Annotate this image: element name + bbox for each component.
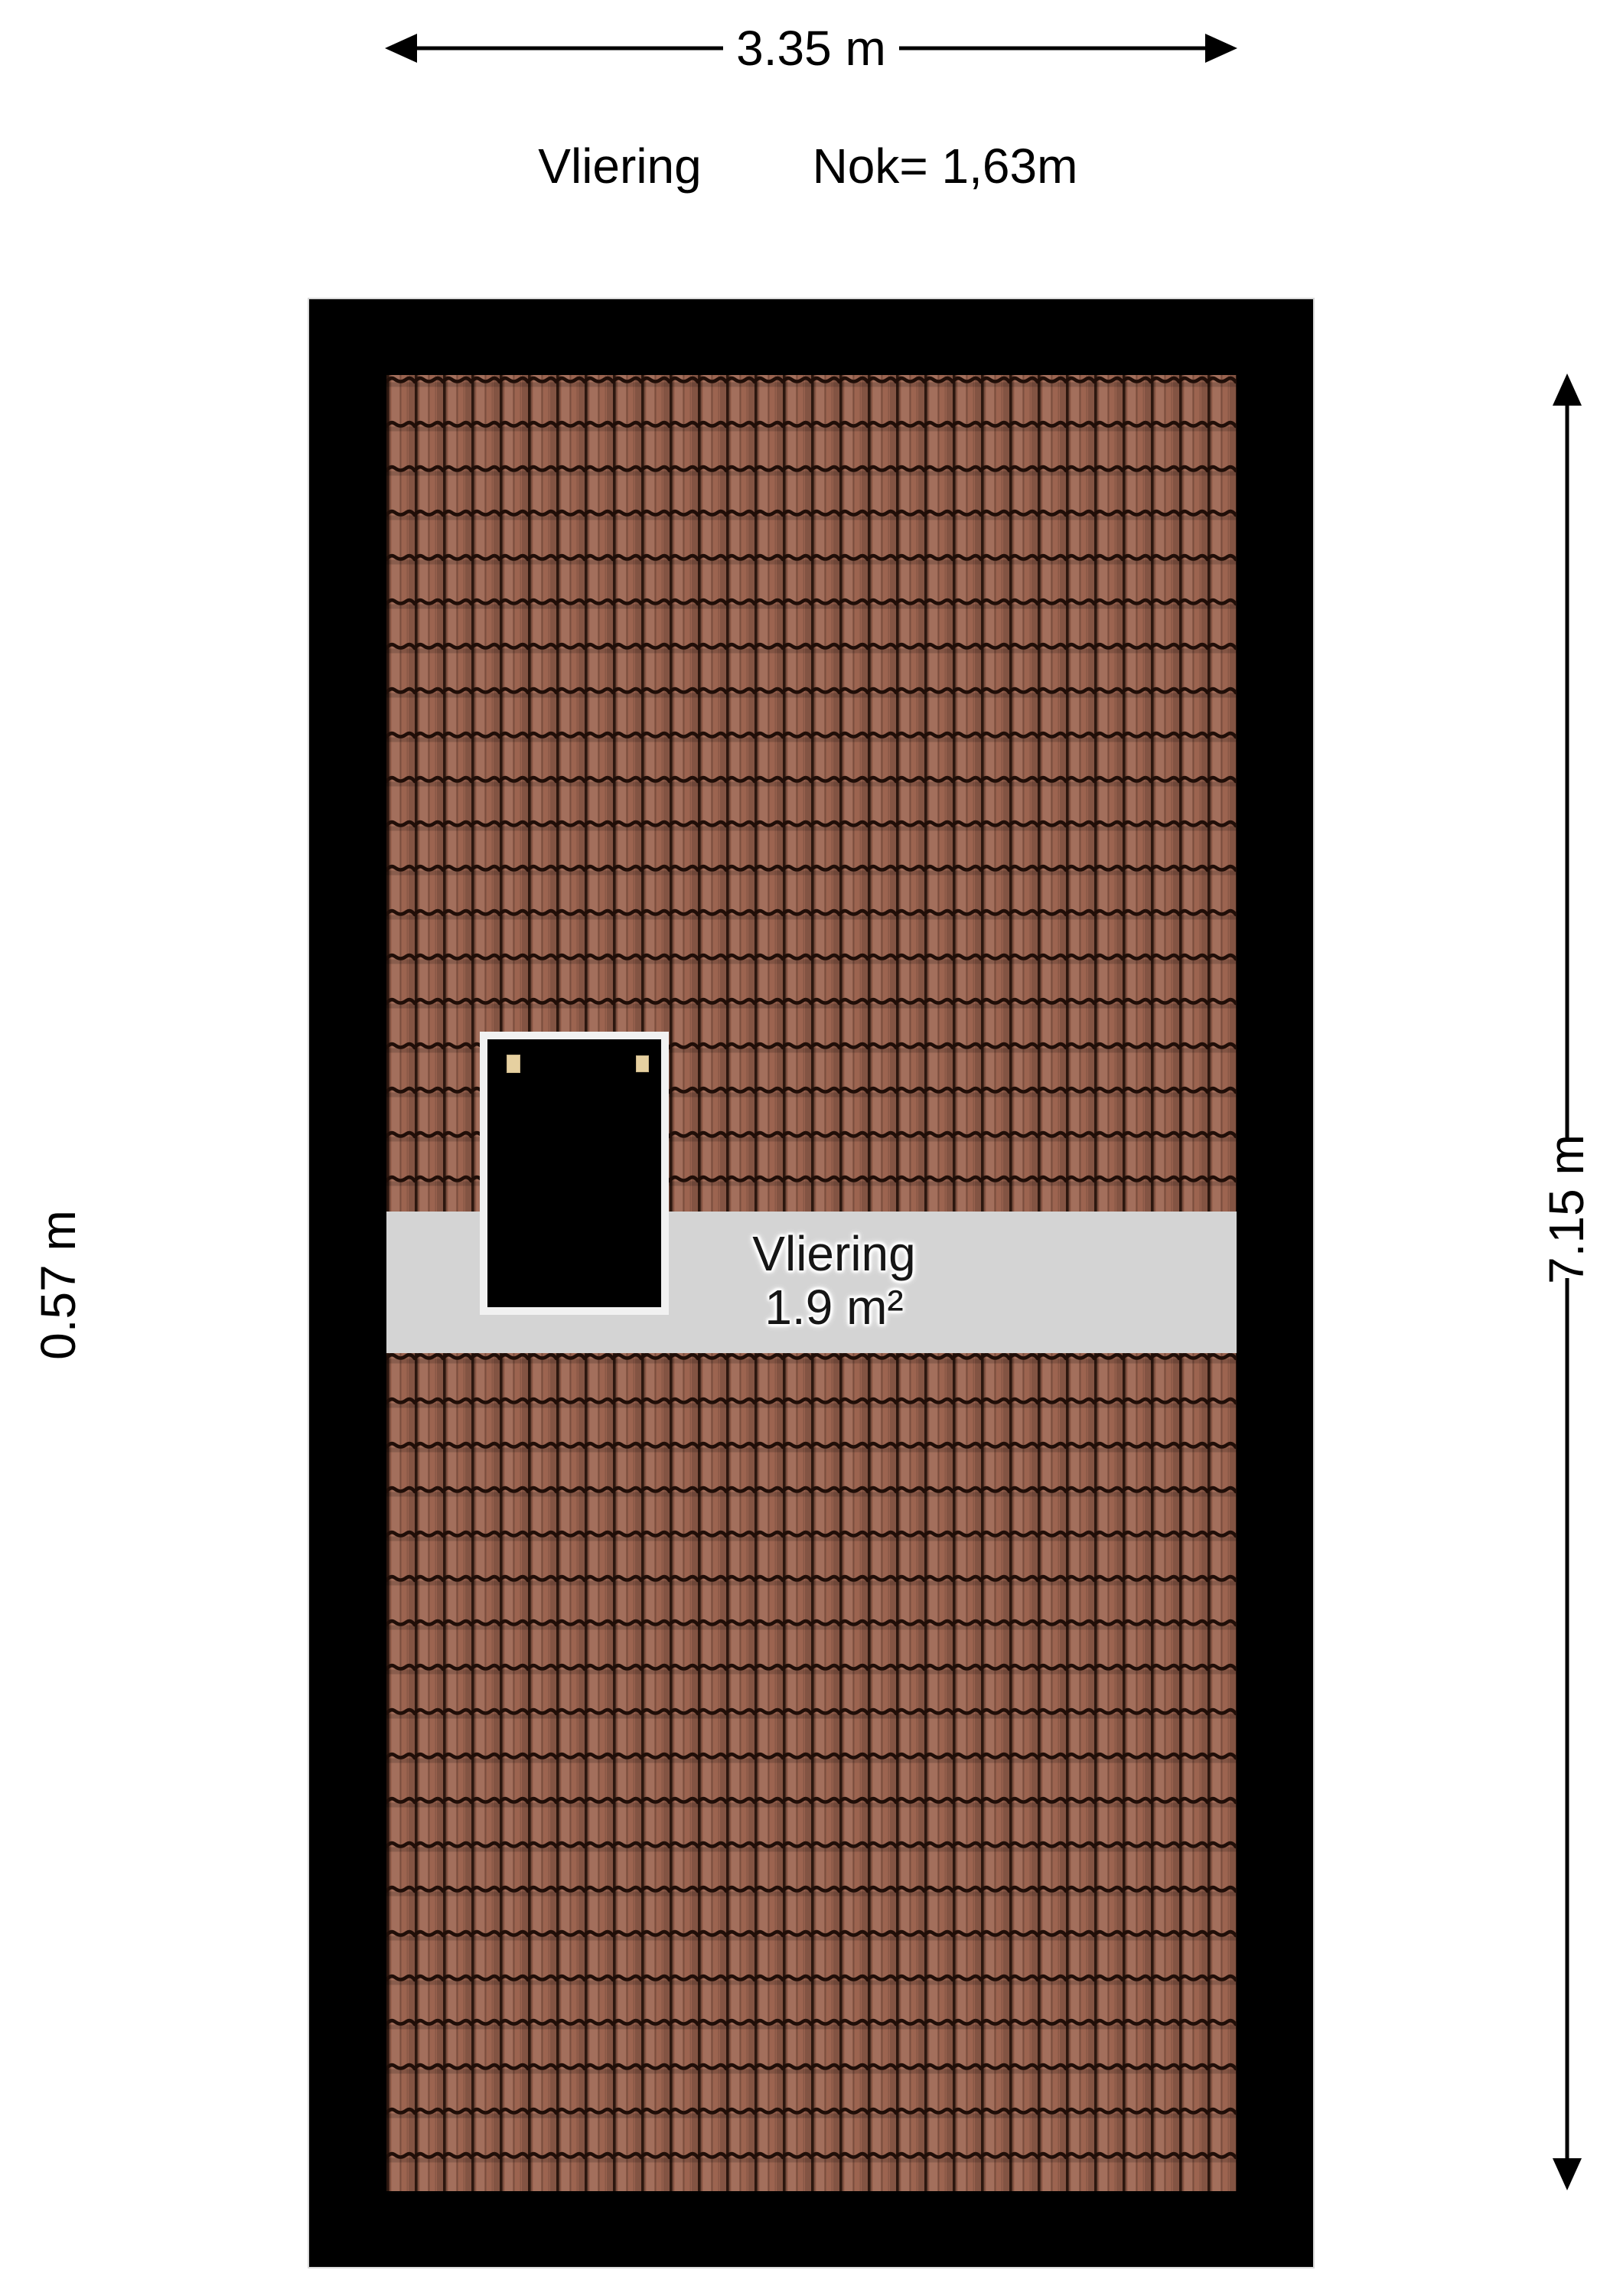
room-name: Vliering — [752, 1227, 915, 1280]
roof-window — [480, 1032, 669, 1315]
room-label: Vliering 1.9 m² — [752, 1227, 915, 1334]
ridge-height-label: Nok= 1,63m — [813, 142, 1078, 191]
room-area: 1.9 m² — [752, 1280, 915, 1334]
right-dimension-label: 7.15 m — [1542, 1134, 1591, 1284]
top-dimension-label: 3.35 m — [736, 24, 886, 73]
floor-title: Vliering — [538, 142, 701, 191]
window-hinge-left-icon — [507, 1055, 520, 1073]
arrowhead-right-icon — [1205, 34, 1237, 63]
arrowhead-left-icon — [385, 34, 417, 63]
arrowhead-down-icon — [1553, 2158, 1582, 2190]
window-hinge-right-icon — [636, 1055, 649, 1072]
arrowhead-up-icon — [1553, 373, 1582, 406]
floorplan-page: 3.35 m Vliering Nok= 1,63m — [0, 0, 1623, 2296]
right-dimension-arrow — [1515, 344, 1623, 2258]
left-dimension-label: 0.57 m — [34, 1210, 83, 1360]
